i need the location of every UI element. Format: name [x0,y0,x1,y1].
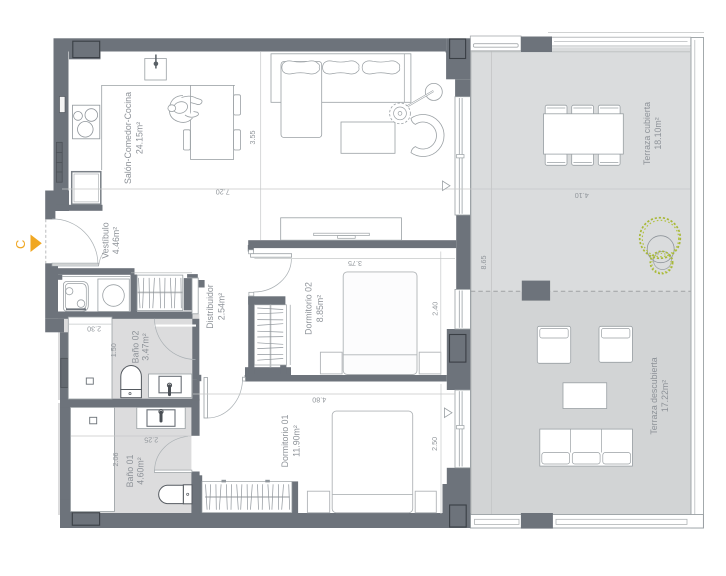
svg-text:3.55: 3.55 [248,131,257,145]
svg-text:4.80: 4.80 [312,396,326,405]
svg-text:8.65: 8.65 [479,256,488,270]
svg-text:Terraza descubierta: Terraza descubierta [649,357,659,434]
svg-text:Baño 01: Baño 01 [125,455,135,488]
svg-text:Vestíbulo: Vestíbulo [101,222,111,258]
svg-text:2.54m²: 2.54m² [217,293,227,320]
svg-text:2.50: 2.50 [430,437,439,451]
svg-text:3.75: 3.75 [348,259,362,268]
svg-text:1.50: 1.50 [109,343,118,357]
svg-text:Salón-Comedor-Cocina: Salón-Comedor-Cocina [123,92,133,184]
svg-text:2.06: 2.06 [111,453,120,467]
svg-text:Distribuidor: Distribuidor [205,284,215,329]
svg-text:2.25: 2.25 [144,435,158,444]
svg-text:Dormitorio 02: Dormitorio 02 [304,282,314,335]
svg-text:18.10m²: 18.10m² [653,117,663,149]
svg-text:4.10: 4.10 [575,191,589,200]
svg-text:4.60m²: 4.60m² [136,457,146,484]
svg-text:8.85m²: 8.85m² [315,295,325,322]
svg-text:17.22m²: 17.22m² [660,380,670,412]
svg-text:C: C [13,240,28,249]
svg-text:4.46m²: 4.46m² [111,227,121,254]
svg-text:3.47m²: 3.47m² [141,333,151,360]
svg-text:11.90m²: 11.90m² [292,425,302,457]
svg-text:2.40: 2.40 [430,302,439,316]
svg-text:Baño 02: Baño 02 [131,331,141,364]
svg-text:24.15m²: 24.15m² [135,122,145,154]
svg-text:Terraza cubierta: Terraza cubierta [642,102,652,165]
svg-text:7.20: 7.20 [216,187,230,196]
svg-text:Dormitorio 01: Dormitorio 01 [280,415,290,468]
svg-text:2.30: 2.30 [87,325,101,334]
